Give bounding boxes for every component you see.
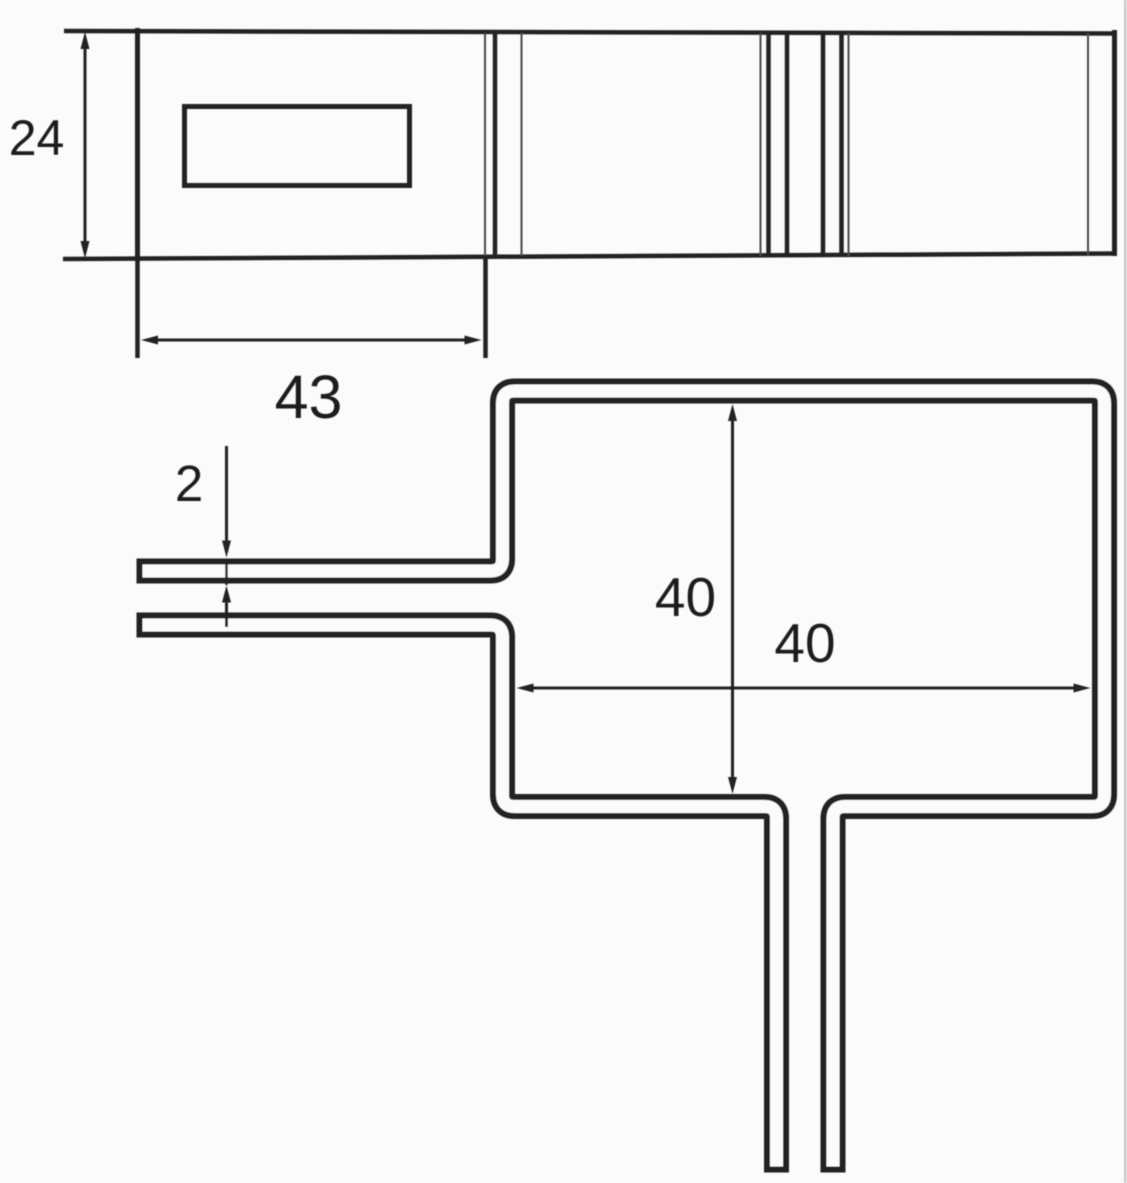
svg-text:24: 24 — [9, 110, 65, 166]
svg-text:40: 40 — [774, 612, 835, 674]
svg-text:2: 2 — [175, 455, 203, 512]
svg-text:40: 40 — [655, 566, 716, 628]
svg-text:43: 43 — [275, 363, 343, 431]
